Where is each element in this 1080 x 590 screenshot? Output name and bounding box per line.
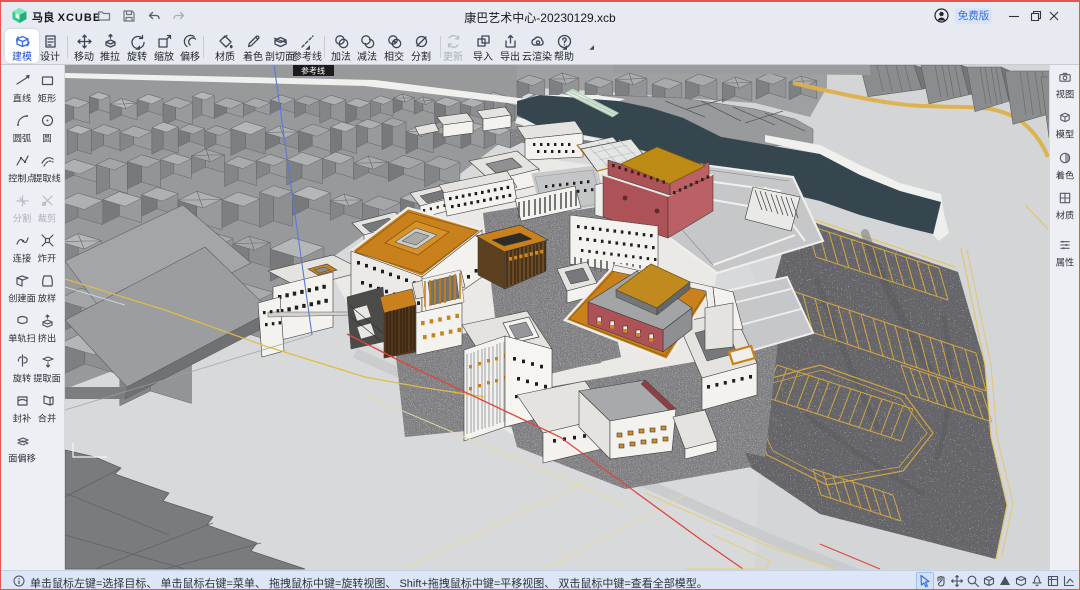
svg-text:参考线: 参考线 xyxy=(301,66,325,76)
